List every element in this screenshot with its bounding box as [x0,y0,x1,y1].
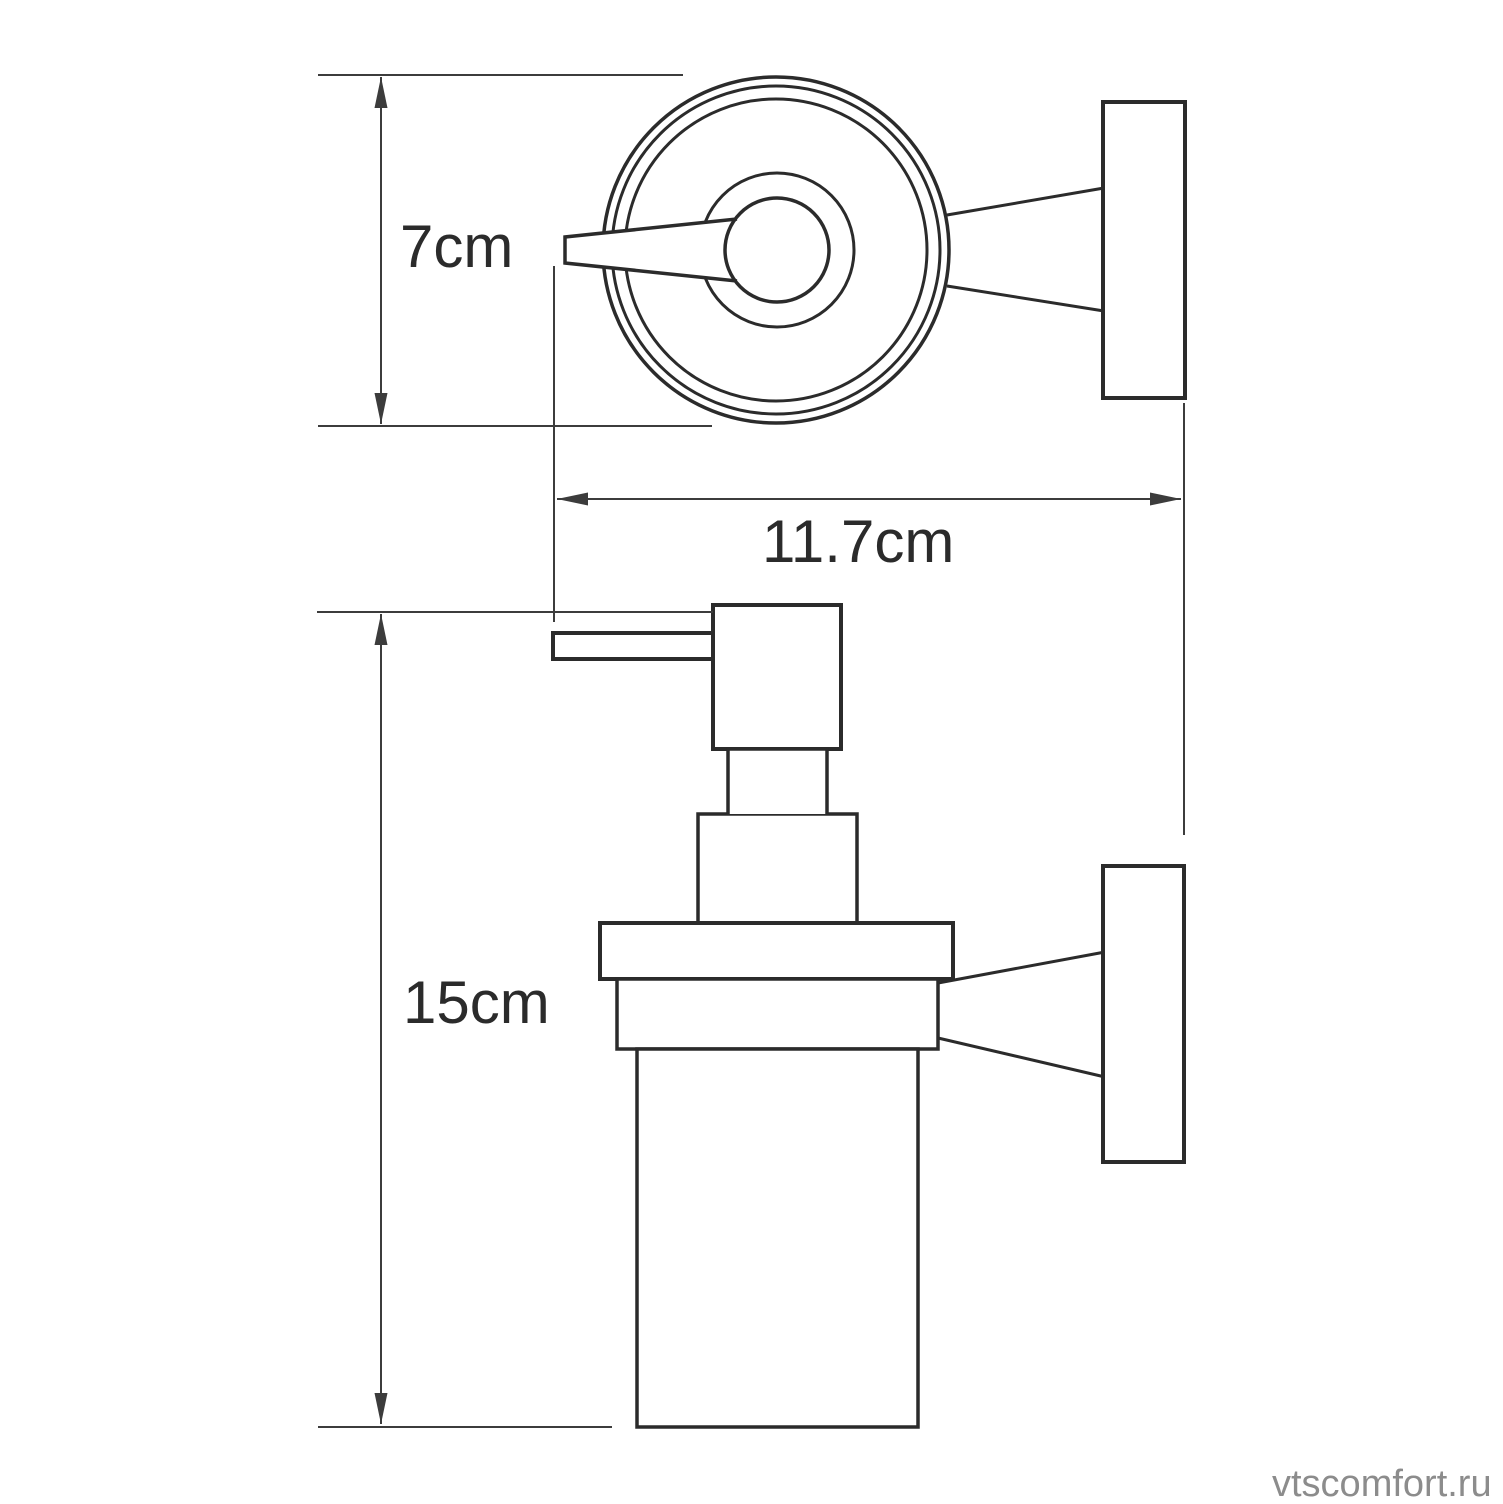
front-view-cone-upper-line [938,952,1105,983]
dimension-label-15cm: 15cm [403,969,550,1036]
top-view-wall-plate [1103,102,1185,398]
arrow-11_7cm-left [557,493,588,506]
arrow-15cm-down [375,1393,388,1424]
front-view-bottle [637,1049,918,1427]
front-view-spout [553,633,713,659]
top-view-pump-head-circle [725,198,829,302]
top-view-cone-upper-line [947,188,1104,215]
dimension-label-7cm: 7cm [400,213,513,280]
soap-dispenser-dimension-drawing: 7cm 11.7cm 15cm vtscomfort.ru [0,0,1503,1504]
front-view-holder-ring [617,979,938,1049]
top-view-cone-lower-line [947,286,1104,311]
front-view-holder-flange [600,923,953,979]
arrow-11_7cm-right [1150,493,1181,506]
arrow-7cm-up [375,77,388,108]
top-view-spout-lever [565,219,737,281]
arrow-7cm-down [375,393,388,424]
technical-drawing-canvas: 7cm 11.7cm 15cm vtscomfort.ru [0,0,1503,1504]
front-view-pump-head [713,605,841,749]
front-view-cone-lower-line [938,1038,1105,1077]
dimension-label-11_7cm: 11.7cm [762,508,954,575]
arrow-15cm-up [375,614,388,645]
front-view-pump-adapter [698,814,857,923]
front-view-wall-plate [1103,866,1184,1162]
watermark-text: vtscomfort.ru [1272,1463,1492,1504]
front-view [553,605,1184,1427]
top-view [565,77,1185,423]
front-view-pump-neck [728,749,827,814]
